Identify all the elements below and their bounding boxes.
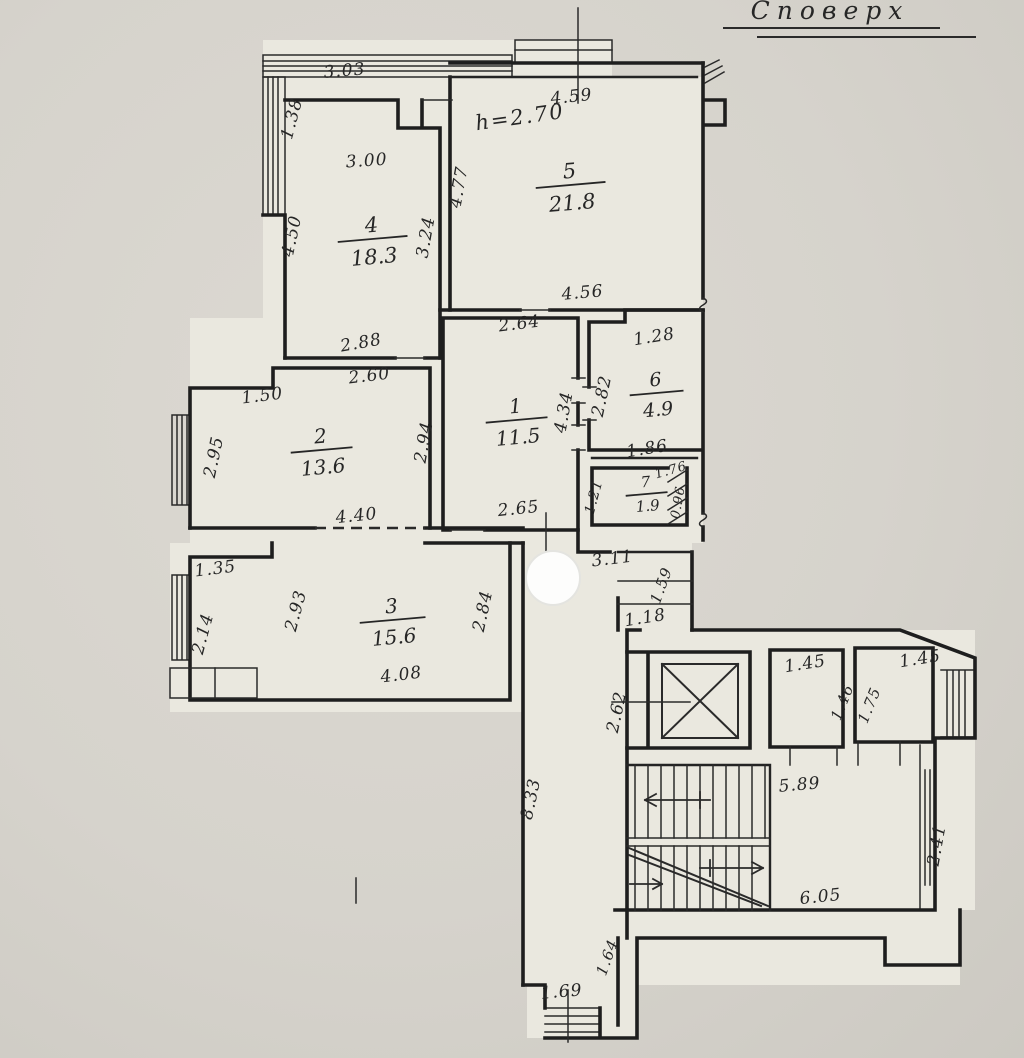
floor-plan-svg: Споверх h=2.70 3.031.383.004.594.774.503…: [0, 0, 1024, 1058]
plan-title-text: Споверх: [751, 0, 910, 25]
dim-label: 4.56: [560, 281, 604, 305]
room-area: 15.6: [371, 623, 418, 651]
room-number: 6: [648, 369, 662, 392]
floorplan-photo: Споверх h=2.70 3.031.383.004.594.774.503…: [0, 0, 1024, 1058]
room-number: 5: [562, 158, 577, 183]
white-redaction-circle: [526, 551, 580, 605]
room-area: 1.9: [635, 496, 661, 516]
room-area: 13.6: [300, 453, 347, 481]
room-number: 2: [312, 424, 328, 449]
dim-label: 3.03: [323, 59, 366, 83]
room-area: 11.5: [495, 423, 541, 451]
dim-label: 3.00: [345, 150, 388, 173]
paper-fill: [170, 40, 975, 1038]
room-number: 4: [363, 212, 379, 237]
title-underline: [723, 28, 976, 37]
room-area: 21.8: [547, 189, 597, 217]
dim-label: 5.89: [778, 773, 821, 797]
room-number: 3: [384, 594, 399, 619]
room-area: 18.3: [350, 243, 399, 271]
dim-label: 1.69: [540, 980, 583, 1004]
room-area: 4.9: [641, 398, 674, 423]
room-number: 1: [508, 394, 523, 419]
plan-title: Споверх: [751, 0, 910, 25]
